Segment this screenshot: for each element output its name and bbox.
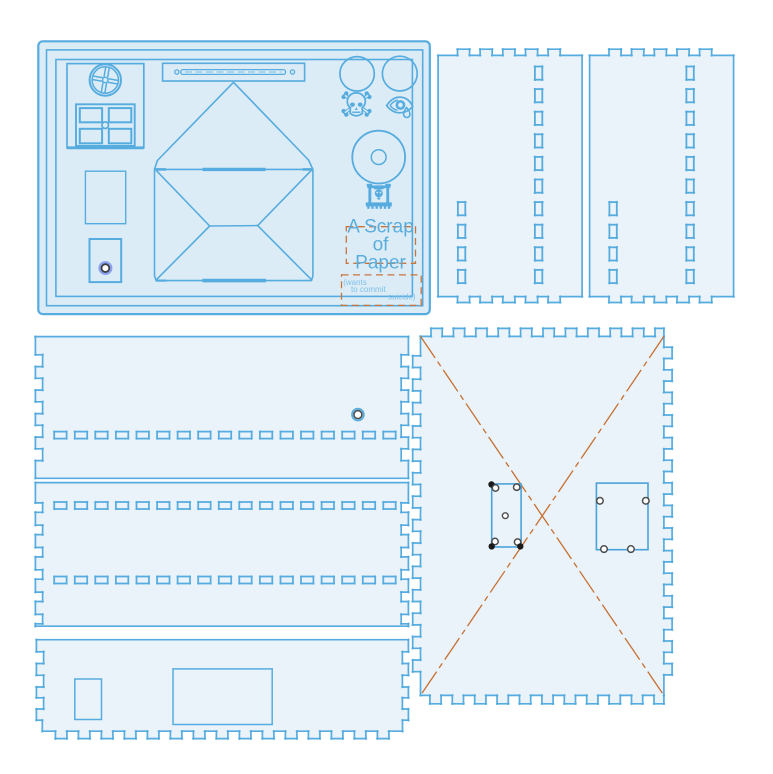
svg-text:suicide): suicide): [388, 293, 416, 302]
svg-text:to commit: to commit: [351, 285, 386, 294]
svg-text:Paper: Paper: [355, 253, 406, 274]
